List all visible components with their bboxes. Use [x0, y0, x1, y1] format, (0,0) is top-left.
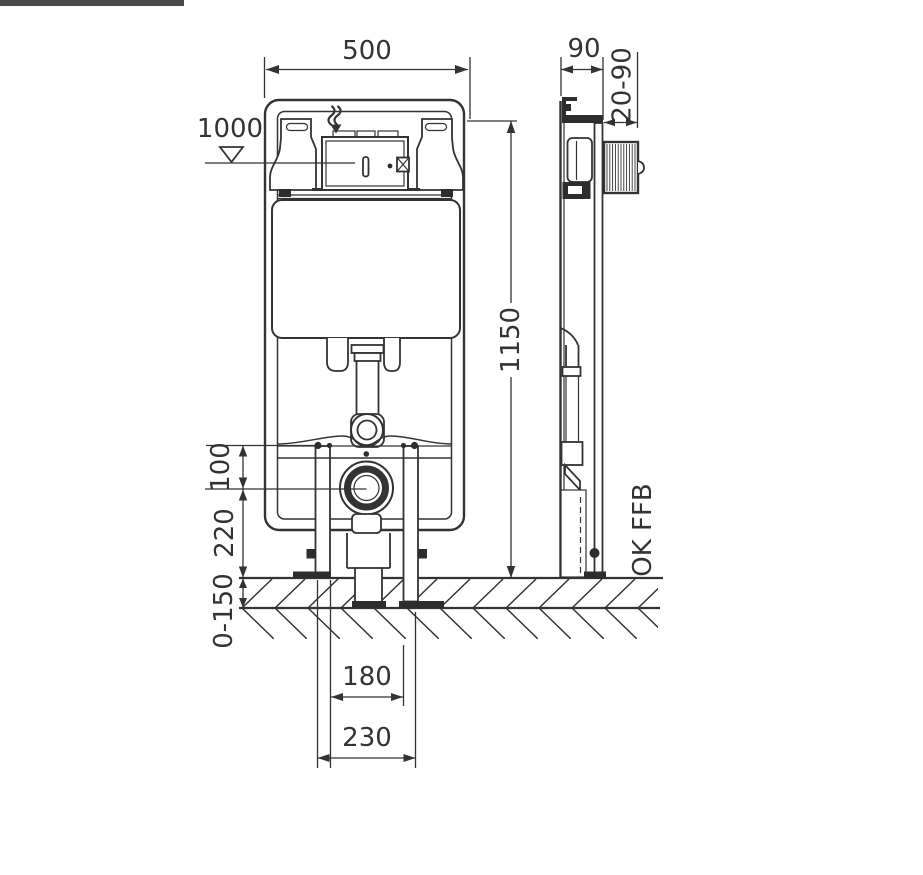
pipe-collar — [563, 367, 581, 376]
anchor-dot — [327, 443, 332, 448]
dim-outlet-height-label: 220 — [210, 508, 240, 558]
pipe-clamp — [352, 514, 381, 533]
level-marker-icon — [220, 147, 243, 162]
dim-inner-spacing-label: 180 — [342, 662, 392, 692]
technical-drawing-page: 500 1150 1000 100 220 0-150 — [0, 0, 923, 875]
fitting-block — [562, 442, 583, 465]
dim-floor-buildup-label: 0-150 — [209, 573, 239, 649]
cistern-top-profile — [568, 138, 593, 182]
dim-outer-spacing-label: 230 — [342, 723, 392, 753]
top-crossbar-profile — [562, 115, 603, 123]
right-leg — [404, 446, 419, 602]
drain-flange — [352, 601, 386, 608]
dim-depth-label: 90 — [567, 34, 600, 64]
floor-reference-label: OK FFB — [628, 483, 658, 577]
floor-ground-section — [239, 578, 663, 639]
dim-width-label: 500 — [342, 36, 392, 66]
drain-pipe-upper — [347, 533, 390, 568]
dim-anchor-to-outlet-label: 100 — [206, 442, 236, 492]
lower-bracket-profile — [561, 490, 586, 577]
drain-pipe-lower — [355, 568, 382, 606]
leg-lock-screw — [590, 548, 600, 558]
left-bracket-slot — [287, 124, 308, 131]
actuator-knob — [638, 161, 644, 174]
left-leg — [316, 446, 331, 573]
dim-actuation-level-label: 1000 — [197, 114, 263, 144]
left-foot-plate — [293, 572, 331, 579]
side-foot-plate — [584, 572, 606, 580]
flush-bell — [352, 345, 384, 353]
anchor-dot — [364, 451, 370, 457]
anchor-dot — [411, 442, 418, 449]
right-foot-plate — [399, 601, 444, 608]
right-bracket-slot — [426, 124, 447, 131]
dim-front-adjust-label: 20-90 — [608, 47, 638, 123]
actuation-slot — [363, 157, 369, 177]
actuator-box — [604, 142, 644, 193]
front-view — [265, 100, 464, 608]
pipe-bend-profile — [565, 465, 580, 490]
wc-frame-dimension-drawing: 500 1150 1000 100 220 0-150 — [0, 0, 923, 875]
anchor-dot — [401, 443, 406, 448]
tank-bottom-tab-right — [384, 338, 400, 371]
tank-bottom-curve — [561, 328, 579, 345]
wc-outlet-connector — [340, 462, 393, 515]
tank-bottom-tab-left — [327, 338, 348, 371]
cistern-tank — [272, 200, 460, 338]
frame-channel-profile — [595, 123, 603, 578]
dim-height-label: 1150 — [496, 307, 526, 373]
anchor-dot — [314, 442, 321, 449]
